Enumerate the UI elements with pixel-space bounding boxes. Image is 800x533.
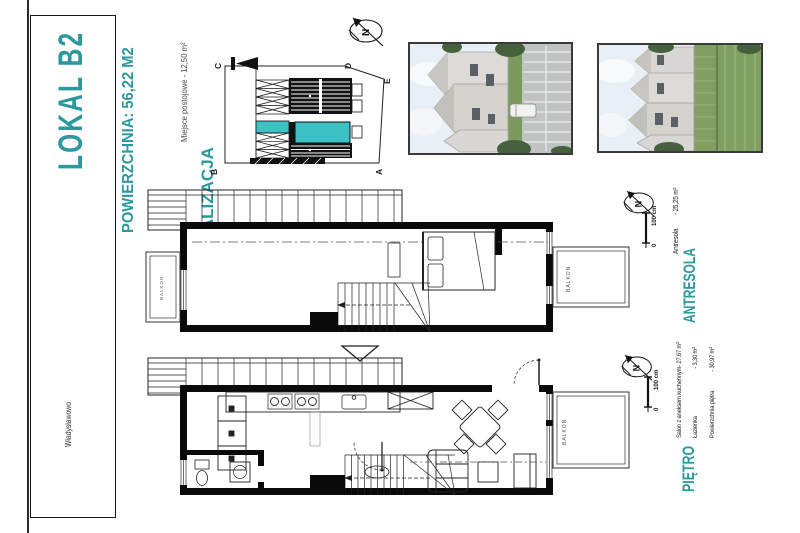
site-entrance-arrow	[231, 57, 258, 70]
antresola-room-line: Antresola - 25,25 m²	[672, 188, 680, 254]
north-letter: N	[632, 365, 642, 372]
north-letter: N	[361, 29, 372, 36]
antresola-bed	[423, 232, 495, 290]
render-photo-1	[408, 42, 573, 155]
scale-zero-label-antresola: 0	[652, 244, 658, 247]
antresola-balcony-right-label: BALKON	[567, 266, 572, 292]
pietro-room-line-3: Powierzchnia piętra - 30,97 m²	[710, 347, 717, 438]
scale-top-label-pietro: 100 cm	[654, 370, 660, 390]
pietro-room-line-2: Łazienka - 3,30 m²	[693, 347, 700, 438]
pietro-void	[310, 475, 345, 495]
site-building-band-upper	[289, 78, 362, 114]
scale-top-label-antresola: 100 cm	[652, 206, 658, 226]
pietro-balcony-label: BALKON	[563, 419, 568, 445]
antresola-balcony-right	[553, 247, 629, 307]
pietro-entrance-door	[514, 359, 541, 386]
north-compass-icon: N	[343, 10, 387, 50]
antresola-walls	[180, 222, 553, 332]
plan-sheet: LOKAL B2 POWIERZCHNIA: 56,22 M2 Władysła…	[0, 0, 800, 533]
render1-car	[510, 104, 536, 117]
antresola-floor-plan	[140, 185, 640, 363]
north-letter: N	[634, 201, 644, 208]
room-area: - 30,97 m²	[710, 347, 717, 372]
room-name: Powierzchnia piętra	[710, 391, 717, 438]
pietro-heading: PIĘTRO	[681, 446, 698, 492]
room-name: Łazienka	[693, 416, 700, 438]
room-area: - 27,67 m²	[677, 342, 684, 367]
site-building-row-lower	[256, 133, 289, 158]
site-unit-highlight	[256, 121, 350, 143]
room-area: - 3,30 m²	[693, 347, 700, 369]
scale-zero-label-pietro: 0	[654, 408, 660, 411]
city-label: Władysławowo	[64, 402, 73, 447]
room-name: Salon z aneksem kuchennym	[677, 367, 684, 438]
sheet-left-border	[27, 0, 29, 533]
parking-note: Miejsce postojowe - 12,50 m²	[180, 43, 189, 142]
area-label: POWIERZCHNIA: 56,22 M2	[121, 47, 137, 233]
site-building-row-upper	[256, 80, 289, 114]
pietro-room-line-1: Salon z aneksem kuchennym - 27,67 m²	[677, 347, 684, 438]
antresola-balcony-left-label: BALKON	[160, 276, 165, 300]
room-area: - 25,25 m²	[672, 188, 680, 215]
antresola-heading: ANTRESOLA	[682, 248, 699, 323]
page-title: LOKAL B2	[54, 31, 88, 170]
antresola-void	[310, 312, 338, 332]
render-photo-2	[597, 43, 763, 153]
room-name: Antresola	[672, 229, 680, 254]
